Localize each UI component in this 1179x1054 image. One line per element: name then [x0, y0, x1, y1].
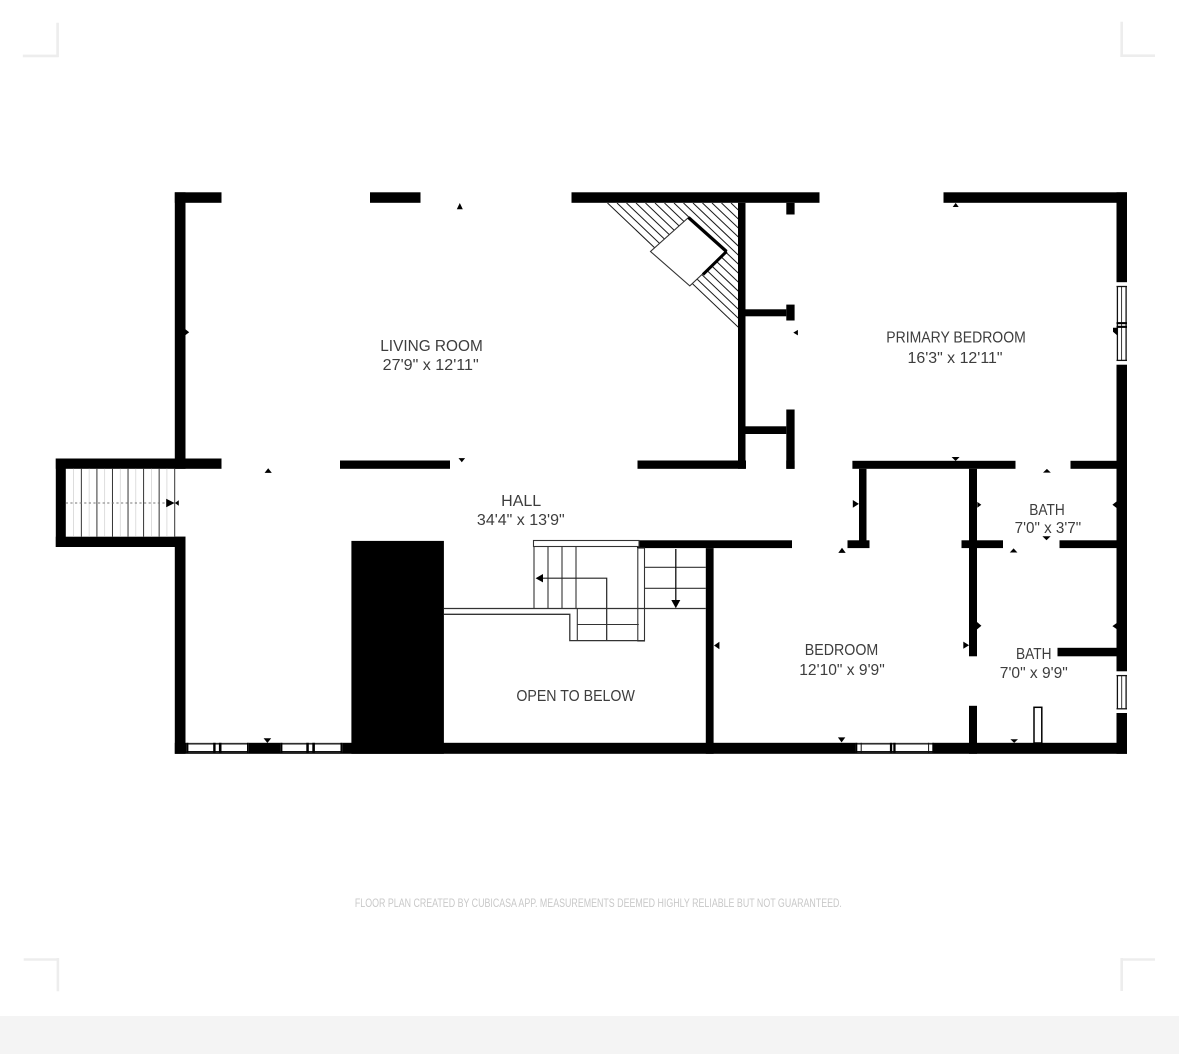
svg-text:27'9" x 12'11": 27'9" x 12'11"	[383, 357, 479, 374]
svg-text:7'0" x 9'9": 7'0" x 9'9"	[1000, 665, 1068, 682]
svg-text:OPEN TO BELOW: OPEN TO BELOW	[516, 688, 635, 705]
svg-text:BATH: BATH	[1029, 502, 1065, 519]
svg-text:BATH: BATH	[1016, 646, 1052, 663]
svg-text:FLOOR PLAN CREATED BY CUBICASA: FLOOR PLAN CREATED BY CUBICASA APP. MEAS…	[355, 896, 842, 910]
svg-text:HALL: HALL	[501, 493, 541, 510]
svg-text:BEDROOM: BEDROOM	[805, 642, 879, 659]
svg-text:LIVING ROOM: LIVING ROOM	[380, 338, 483, 355]
svg-text:PRIMARY BEDROOM: PRIMARY BEDROOM	[886, 330, 1026, 347]
svg-text:34'4" x 13'9": 34'4" x 13'9"	[477, 512, 565, 529]
svg-text:16'3" x 12'11": 16'3" x 12'11"	[908, 350, 1003, 367]
svg-text:7'0" x 3'7": 7'0" x 3'7"	[1015, 520, 1082, 537]
svg-text:12'10" x 9'9": 12'10" x 9'9"	[799, 662, 885, 679]
